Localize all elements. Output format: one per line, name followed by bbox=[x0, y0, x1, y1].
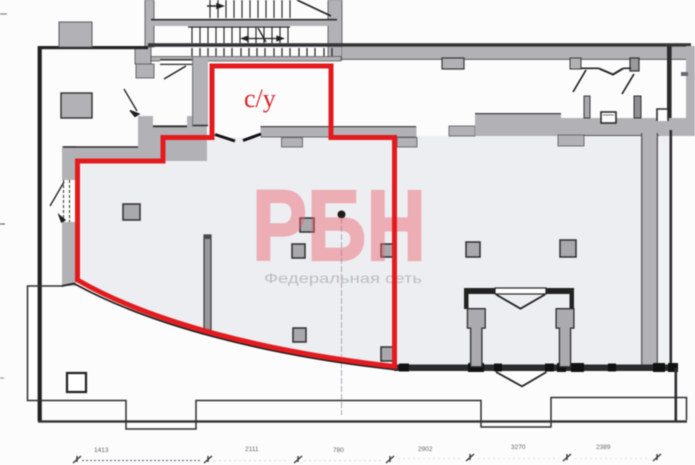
svg-text:с/у: с/у bbox=[244, 84, 276, 113]
svg-text:2389: 2389 bbox=[596, 444, 611, 451]
svg-text:3270: 3270 bbox=[511, 444, 526, 451]
svg-text:РБН: РБН bbox=[252, 170, 426, 282]
svg-text:1413: 1413 bbox=[94, 447, 109, 454]
svg-text:Федеральная сеть: Федеральная сеть bbox=[264, 270, 422, 286]
svg-text:2111: 2111 bbox=[245, 446, 259, 453]
svg-text:780: 780 bbox=[333, 447, 344, 454]
svg-text:2902: 2902 bbox=[418, 446, 433, 453]
